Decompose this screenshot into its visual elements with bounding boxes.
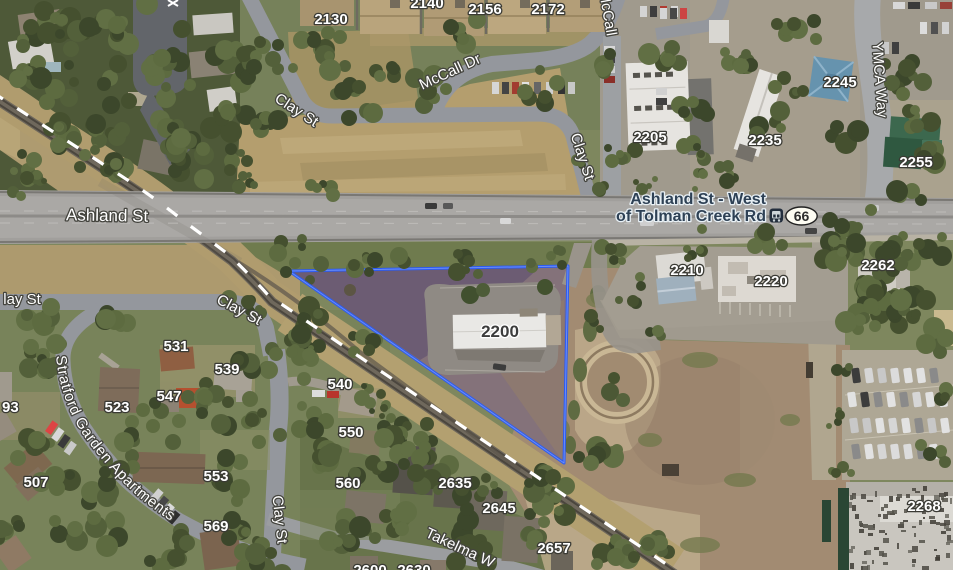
svg-text:2205: 2205 (633, 129, 666, 146)
svg-text:2600: 2600 (353, 562, 386, 570)
svg-text:2235: 2235 (748, 132, 781, 149)
svg-text:539: 539 (214, 361, 239, 378)
svg-text:2657: 2657 (537, 540, 570, 557)
svg-text:of Tolman Creek Rd: of Tolman Creek Rd (616, 208, 766, 225)
svg-text:2245: 2245 (823, 74, 856, 91)
svg-text:2255: 2255 (899, 154, 932, 171)
svg-text:2645: 2645 (482, 500, 515, 517)
svg-text:93: 93 (2, 399, 19, 416)
svg-text:507: 507 (23, 474, 48, 491)
svg-text:2156: 2156 (468, 1, 501, 18)
svg-text:Ashland St - West: Ashland St - West (630, 191, 766, 208)
svg-text:550: 550 (338, 424, 363, 441)
svg-text:lay St: lay St (3, 291, 41, 308)
svg-text:2268: 2268 (907, 498, 940, 515)
svg-text:2172: 2172 (531, 1, 564, 18)
svg-text:2635: 2635 (438, 475, 471, 492)
svg-text:531: 531 (163, 338, 188, 355)
svg-text:66: 66 (794, 208, 810, 224)
svg-text:2262: 2262 (861, 257, 894, 274)
svg-text:523: 523 (104, 399, 129, 416)
svg-text:560: 560 (335, 475, 360, 492)
svg-text:553: 553 (203, 468, 228, 485)
svg-text:2140: 2140 (410, 0, 443, 12)
svg-text:540: 540 (327, 376, 352, 393)
svg-text:2130: 2130 (314, 11, 347, 28)
svg-text:547: 547 (156, 388, 181, 405)
svg-text:2200: 2200 (481, 322, 519, 341)
svg-text:Ashland St: Ashland St (66, 205, 149, 225)
svg-text:2630: 2630 (397, 562, 430, 570)
svg-text:2210: 2210 (670, 262, 703, 279)
svg-text:569: 569 (203, 518, 228, 535)
svg-text:2220: 2220 (754, 273, 787, 290)
